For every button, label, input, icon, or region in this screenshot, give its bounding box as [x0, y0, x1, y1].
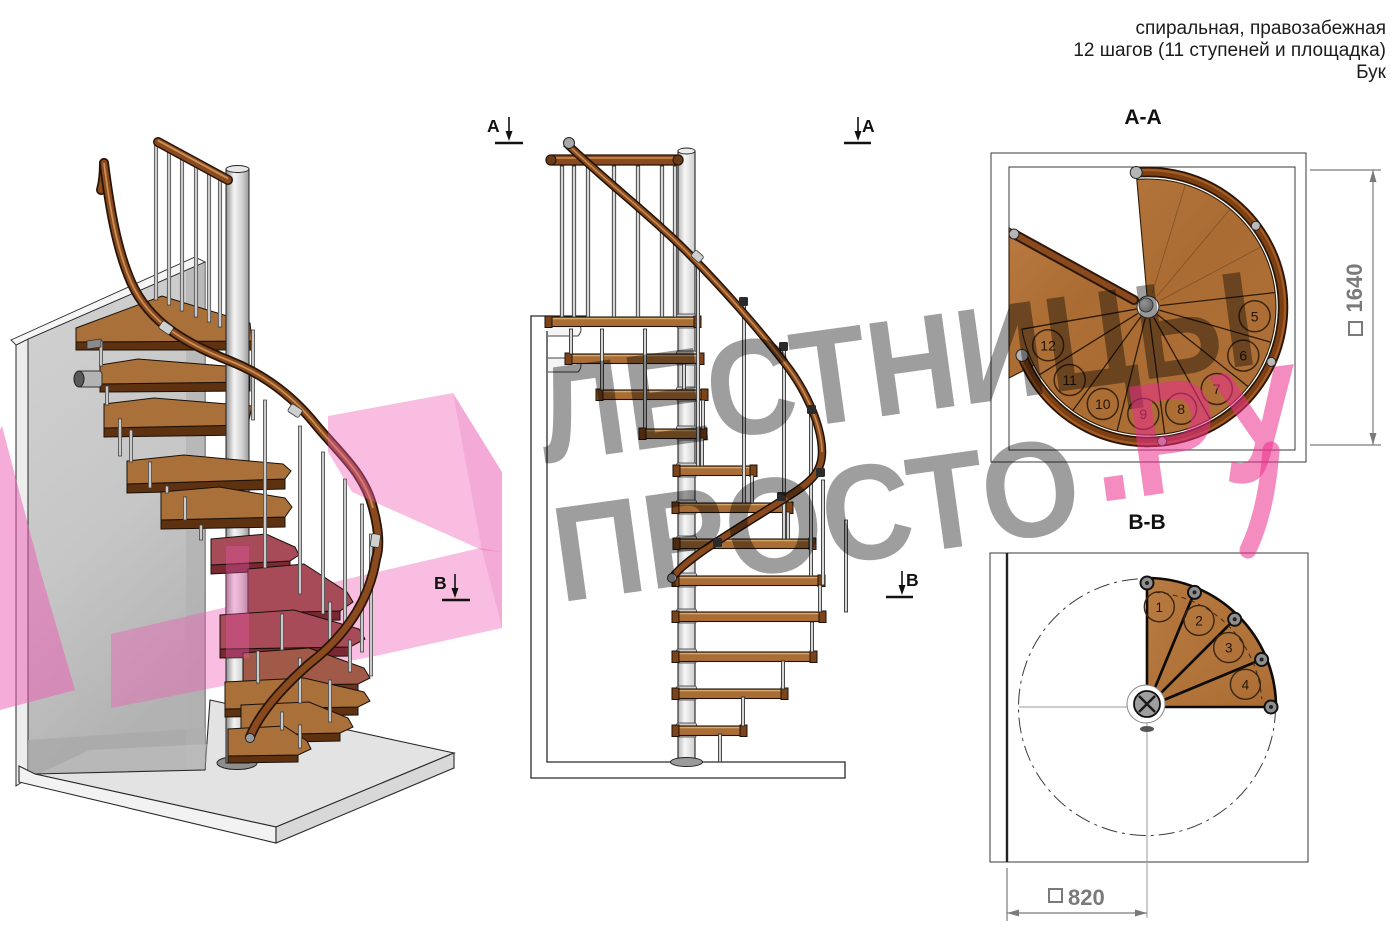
svg-text:820: 820: [1068, 885, 1105, 910]
svg-text:А: А: [487, 116, 500, 136]
svg-text:3: 3: [1225, 641, 1233, 656]
svg-text:А: А: [862, 116, 875, 136]
svg-text:12 шагов (11 ступеней и площад: 12 шагов (11 ступеней и площадка): [1073, 40, 1386, 61]
svg-text:1: 1: [1156, 600, 1164, 615]
svg-text:.РУ: .РУ: [1078, 329, 1315, 536]
svg-text:В: В: [434, 573, 447, 593]
svg-text:1640: 1640: [1342, 264, 1367, 313]
svg-text:2: 2: [1195, 613, 1203, 628]
svg-text:4: 4: [1242, 677, 1250, 692]
svg-text:спиральная, правозабежная: спиральная, правозабежная: [1136, 18, 1386, 39]
svg-text:Бук: Бук: [1356, 62, 1387, 83]
svg-text:А-А: А-А: [1124, 106, 1161, 129]
